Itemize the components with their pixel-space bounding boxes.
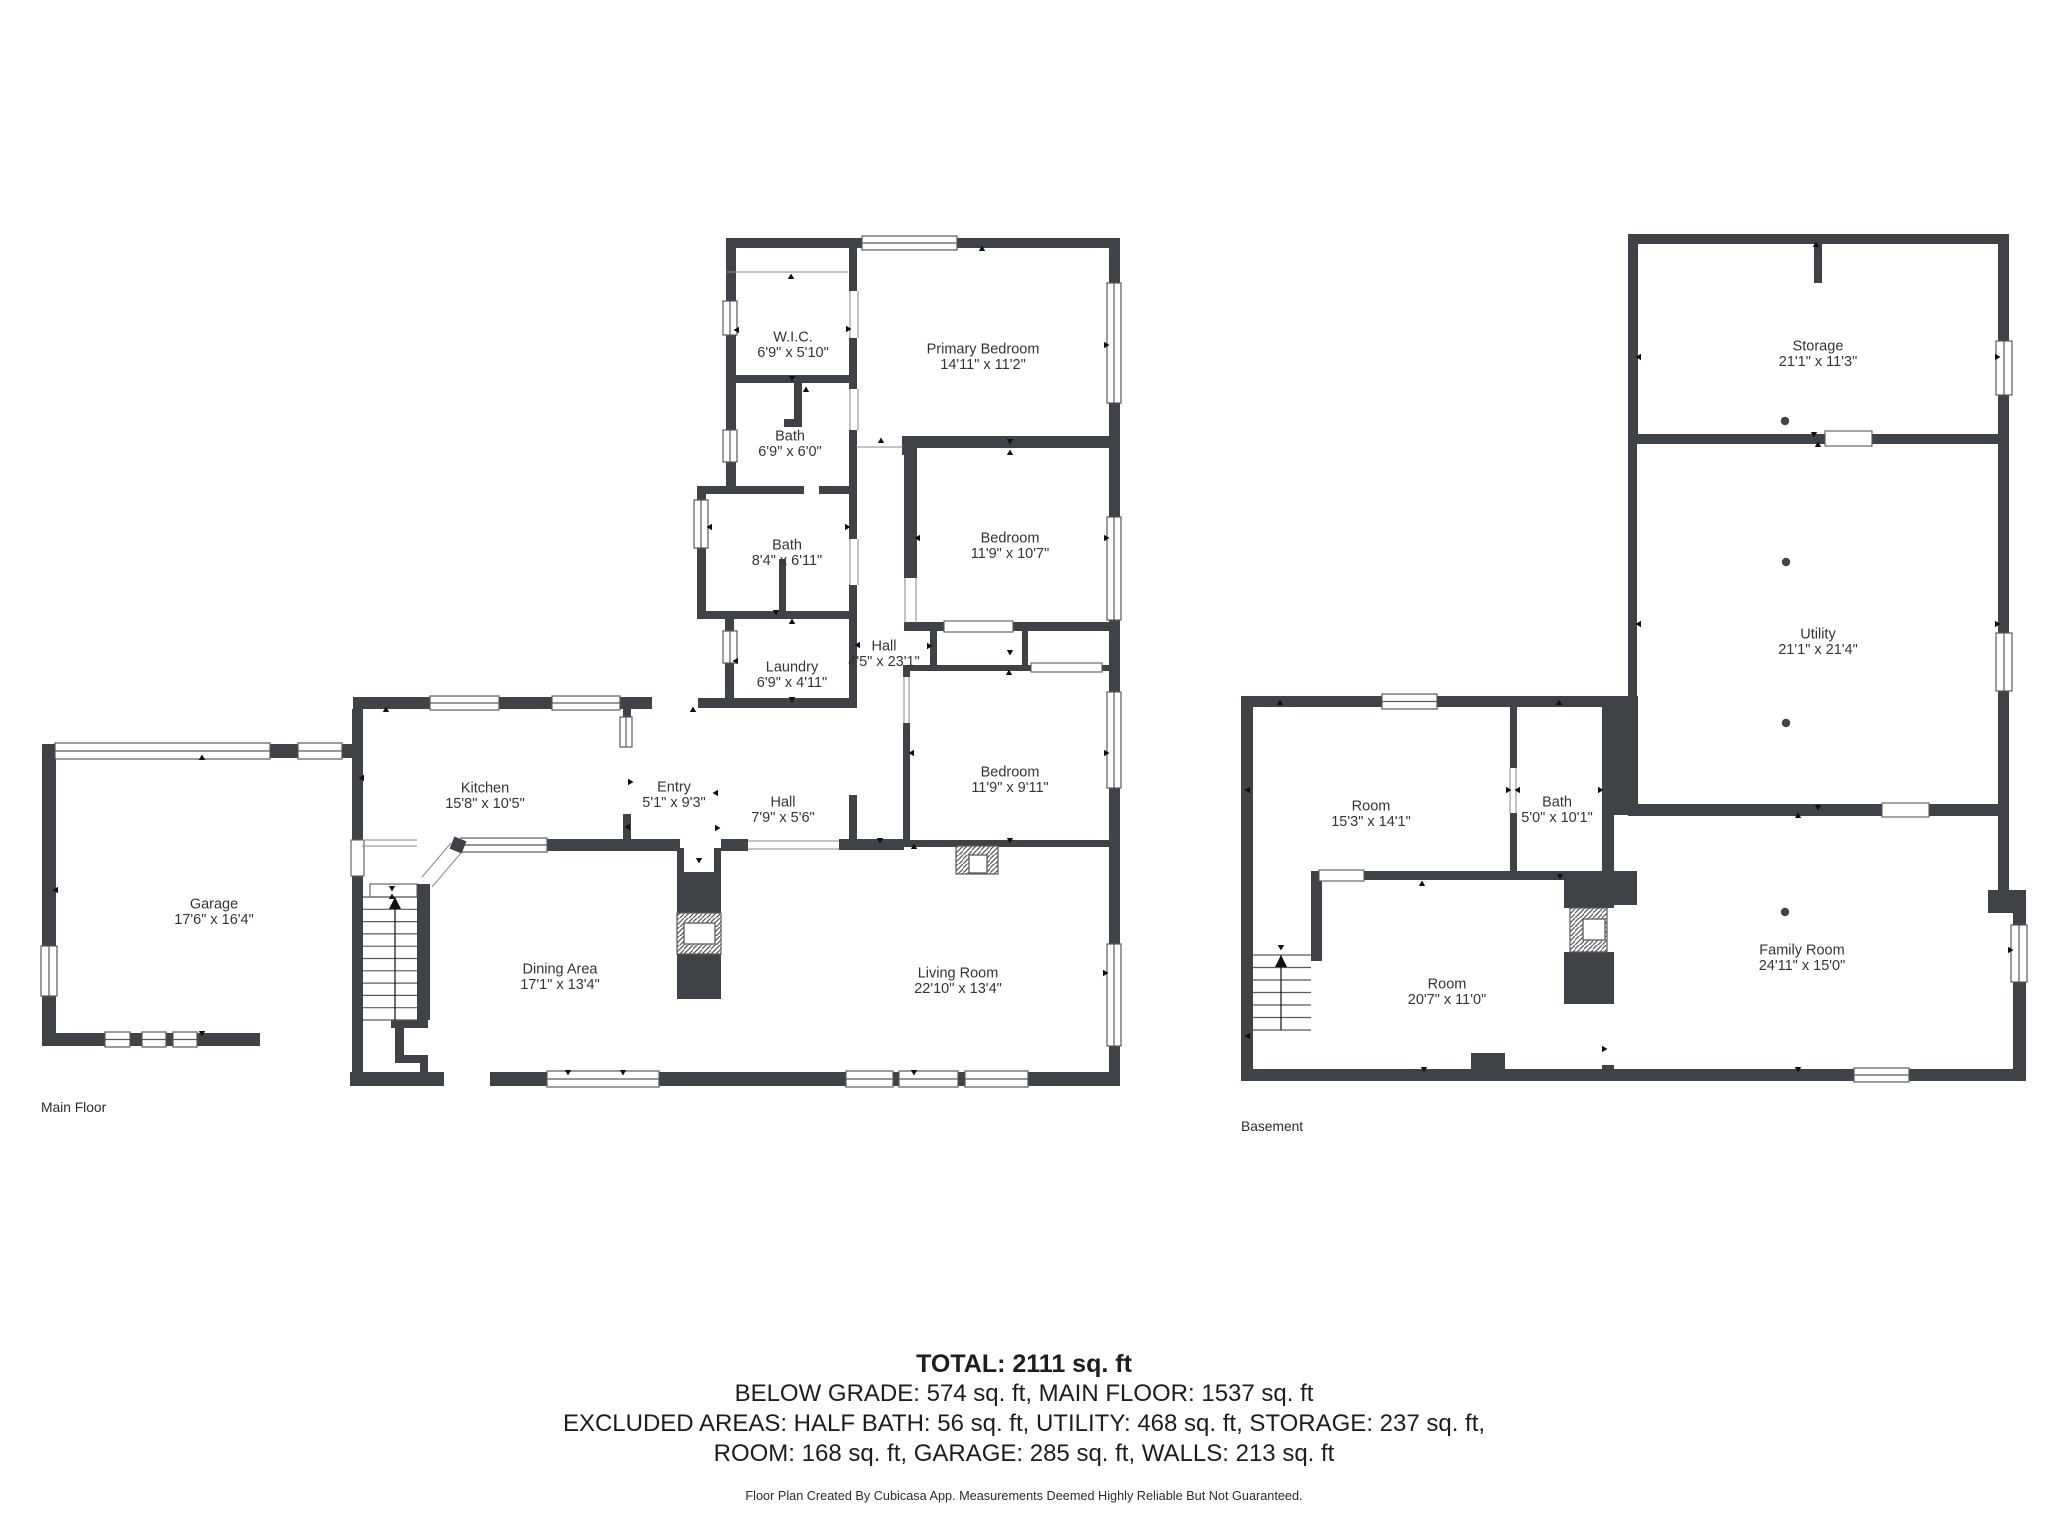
svg-text:17'1" x 13'4": 17'1" x 13'4" xyxy=(520,977,600,993)
svg-text:Garage: Garage xyxy=(190,896,238,912)
svg-text:21'1" x 21'4": 21'1" x 21'4" xyxy=(1778,642,1858,658)
svg-text:Bedroom: Bedroom xyxy=(981,530,1040,546)
svg-text:EXCLUDED AREAS: HALF BATH: 56: EXCLUDED AREAS: HALF BATH: 56 sq. ft, UT… xyxy=(563,1410,1485,1437)
svg-text:ROOM: 168 sq. ft, GARAGE: 285: ROOM: 168 sq. ft, GARAGE: 285 sq. ft, WA… xyxy=(714,1440,1335,1467)
svg-text:Bedroom: Bedroom xyxy=(981,764,1040,780)
svg-text:Kitchen: Kitchen xyxy=(461,780,509,796)
svg-text:6'9" x 4'11": 6'9" x 4'11" xyxy=(757,675,827,691)
svg-text:17'6" x 16'4": 17'6" x 16'4" xyxy=(174,912,254,928)
svg-text:Storage: Storage xyxy=(1793,338,1844,354)
svg-text:5'0" x 10'1": 5'0" x 10'1" xyxy=(1521,810,1592,826)
svg-text:W.I.C.: W.I.C. xyxy=(773,329,812,345)
svg-text:6'9" x 6'0": 6'9" x 6'0" xyxy=(758,444,821,460)
svg-text:15'3" x 14'1": 15'3" x 14'1" xyxy=(1331,814,1411,830)
svg-text:7'9" x 5'6": 7'9" x 5'6" xyxy=(751,810,814,826)
svg-text:Basement: Basement xyxy=(1241,1119,1303,1134)
svg-text:Utility: Utility xyxy=(1800,626,1836,642)
svg-text:4'5" x 23'1": 4'5" x 23'1" xyxy=(848,654,919,670)
svg-text:24'11" x 15'0": 24'11" x 15'0" xyxy=(1759,958,1846,974)
svg-text:Bath: Bath xyxy=(1542,794,1572,810)
svg-text:11'9" x 10'7": 11'9" x 10'7" xyxy=(971,546,1049,562)
svg-text:Floor Plan Created By Cubicasa: Floor Plan Created By Cubicasa App. Meas… xyxy=(745,1489,1302,1503)
svg-text:Entry: Entry xyxy=(657,779,692,795)
svg-text:8'4" x 6'11": 8'4" x 6'11" xyxy=(752,553,822,569)
svg-text:Bath: Bath xyxy=(775,428,805,444)
svg-text:Laundry: Laundry xyxy=(766,659,819,675)
svg-text:6'9" x 5'10": 6'9" x 5'10" xyxy=(757,345,828,361)
svg-text:Bath: Bath xyxy=(772,537,802,553)
svg-text:15'8" x 10'5": 15'8" x 10'5" xyxy=(445,796,525,812)
svg-text:5'1" x 9'3": 5'1" x 9'3" xyxy=(642,795,705,811)
svg-text:20'7" x 11'0": 20'7" x 11'0" xyxy=(1408,992,1486,1008)
svg-text:Dining Area: Dining Area xyxy=(523,961,599,977)
svg-text:Hall: Hall xyxy=(771,794,796,810)
svg-text:Room: Room xyxy=(1428,976,1467,992)
svg-text:Living Room: Living Room xyxy=(918,965,999,981)
svg-text:21'1" x 11'3": 21'1" x 11'3" xyxy=(1779,354,1857,370)
svg-text:Main Floor: Main Floor xyxy=(41,1100,107,1115)
svg-text:14'11" x 11'2": 14'11" x 11'2" xyxy=(940,357,1025,373)
svg-text:Family Room: Family Room xyxy=(1759,942,1844,958)
svg-text:Hall: Hall xyxy=(872,638,897,654)
svg-text:11'9" x 9'11": 11'9" x 9'11" xyxy=(971,780,1048,796)
svg-text:TOTAL: 2111 sq. ft: TOTAL: 2111 sq. ft xyxy=(916,1350,1132,1378)
svg-text:Room: Room xyxy=(1352,798,1391,814)
svg-text:BELOW GRADE: 574 sq. ft, MAIN: BELOW GRADE: 574 sq. ft, MAIN FLOOR: 153… xyxy=(735,1380,1314,1407)
svg-text:22'10" x 13'4": 22'10" x 13'4" xyxy=(914,981,1002,997)
svg-text:Primary Bedroom: Primary Bedroom xyxy=(927,341,1040,357)
